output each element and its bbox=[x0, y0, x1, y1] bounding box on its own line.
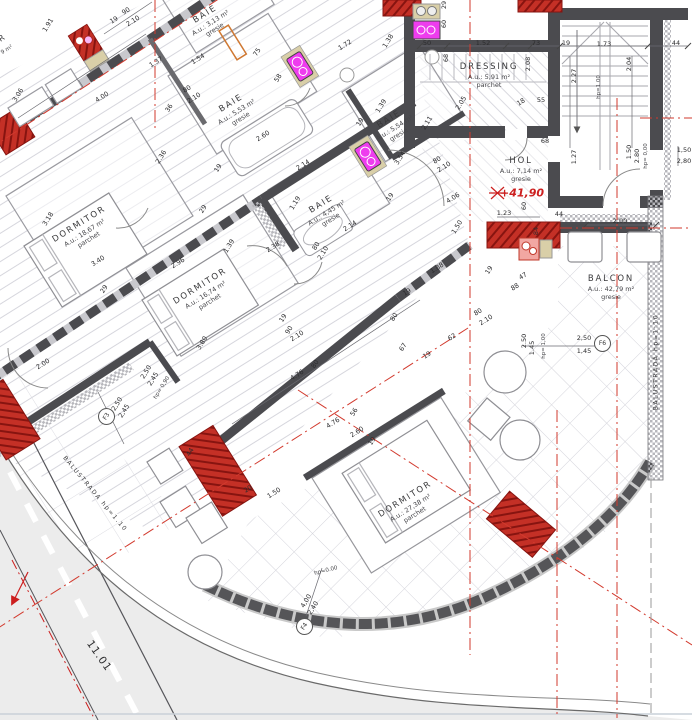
lounger bbox=[627, 232, 661, 262]
armchair bbox=[500, 420, 540, 460]
armchair bbox=[188, 555, 222, 589]
lounger bbox=[568, 232, 602, 262]
dressing-sink-washer bbox=[413, 4, 440, 39]
armchair bbox=[484, 351, 526, 393]
plan-drawing bbox=[0, 0, 692, 720]
hol-sink bbox=[519, 238, 552, 260]
staircase bbox=[562, 22, 648, 170]
floor-plan: 1.9119902.101.373.064.00802.10362.361929… bbox=[0, 0, 692, 720]
ceiling-symbol bbox=[340, 68, 354, 82]
ceiling-symbol bbox=[425, 50, 439, 64]
